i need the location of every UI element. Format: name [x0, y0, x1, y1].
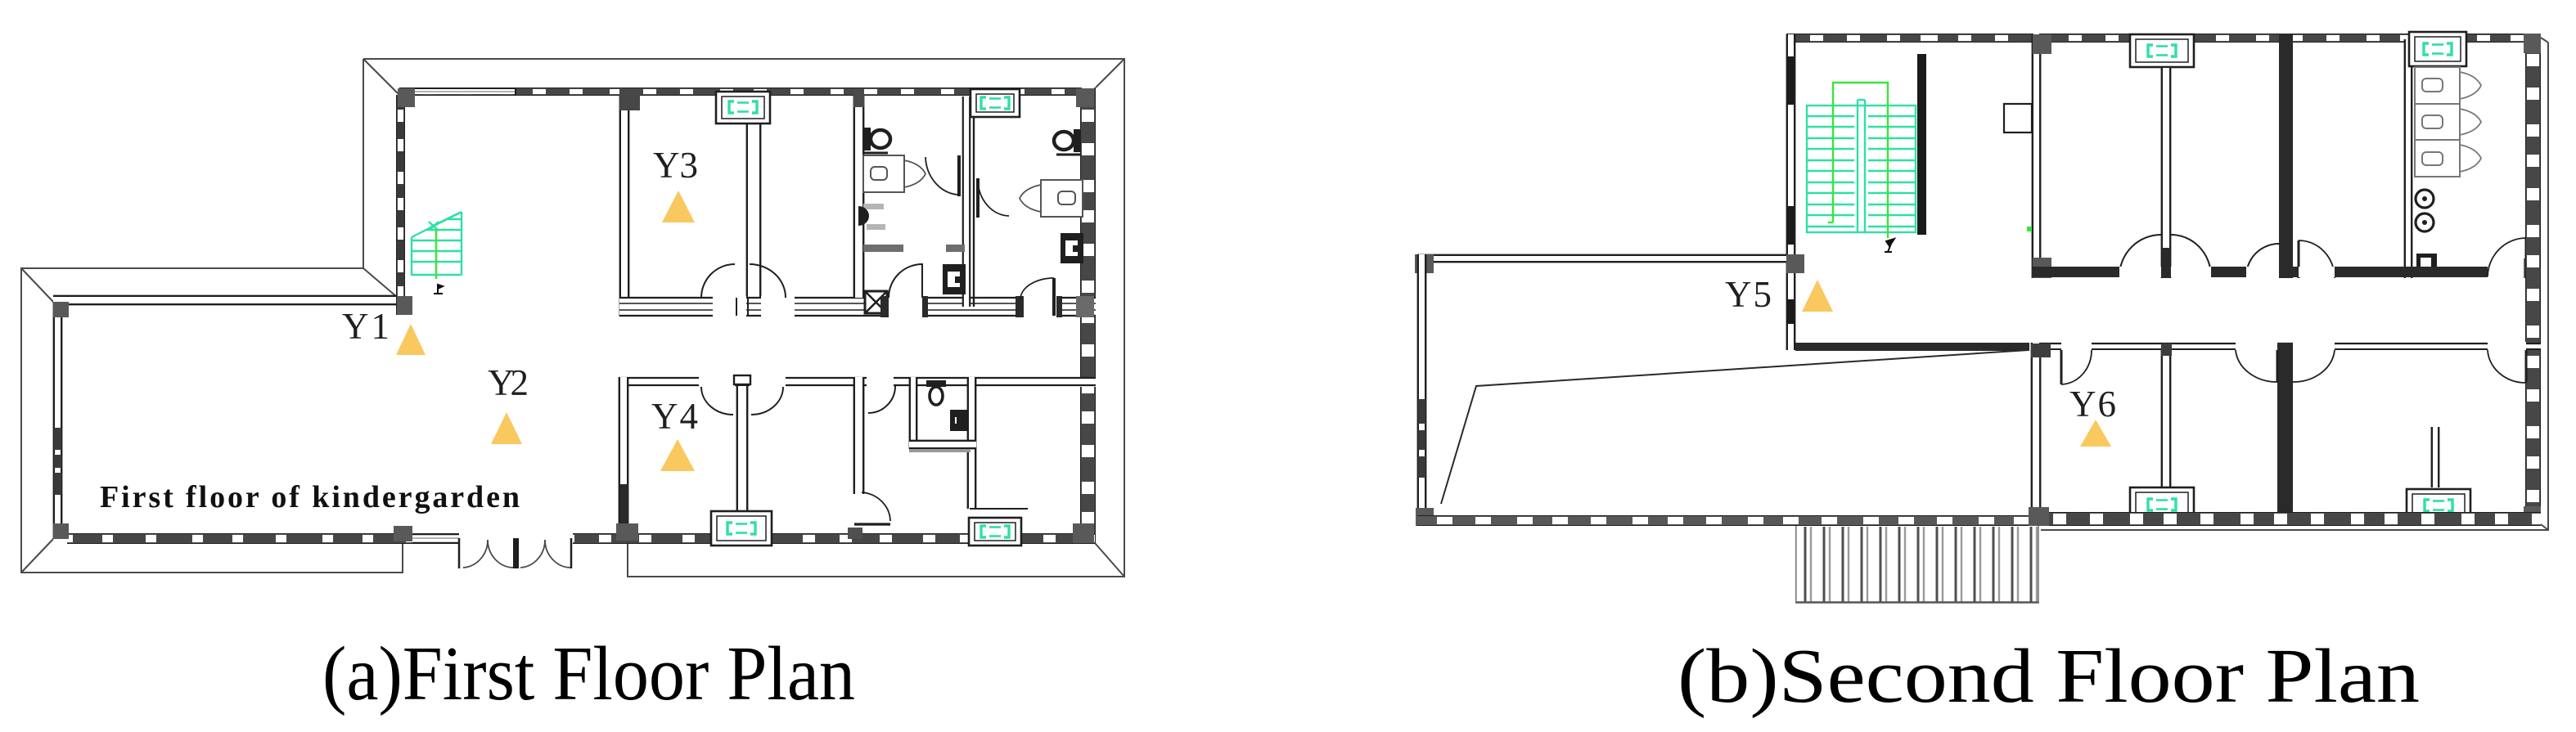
svg-text:Y2: Y2	[488, 362, 529, 403]
svg-text:(b)Second Floor Plan: (b)Second Floor Plan	[1678, 634, 2420, 719]
svg-text:(a)First Floor Plan: (a)First Floor Plan	[322, 631, 855, 716]
svg-text:Y6: Y6	[2069, 384, 2116, 424]
svg-text:Y3: Y3	[653, 145, 698, 186]
svg-text:Y5: Y5	[1725, 274, 1772, 315]
svg-text:Y1: Y1	[342, 306, 390, 347]
svg-text:Y4: Y4	[651, 396, 698, 437]
